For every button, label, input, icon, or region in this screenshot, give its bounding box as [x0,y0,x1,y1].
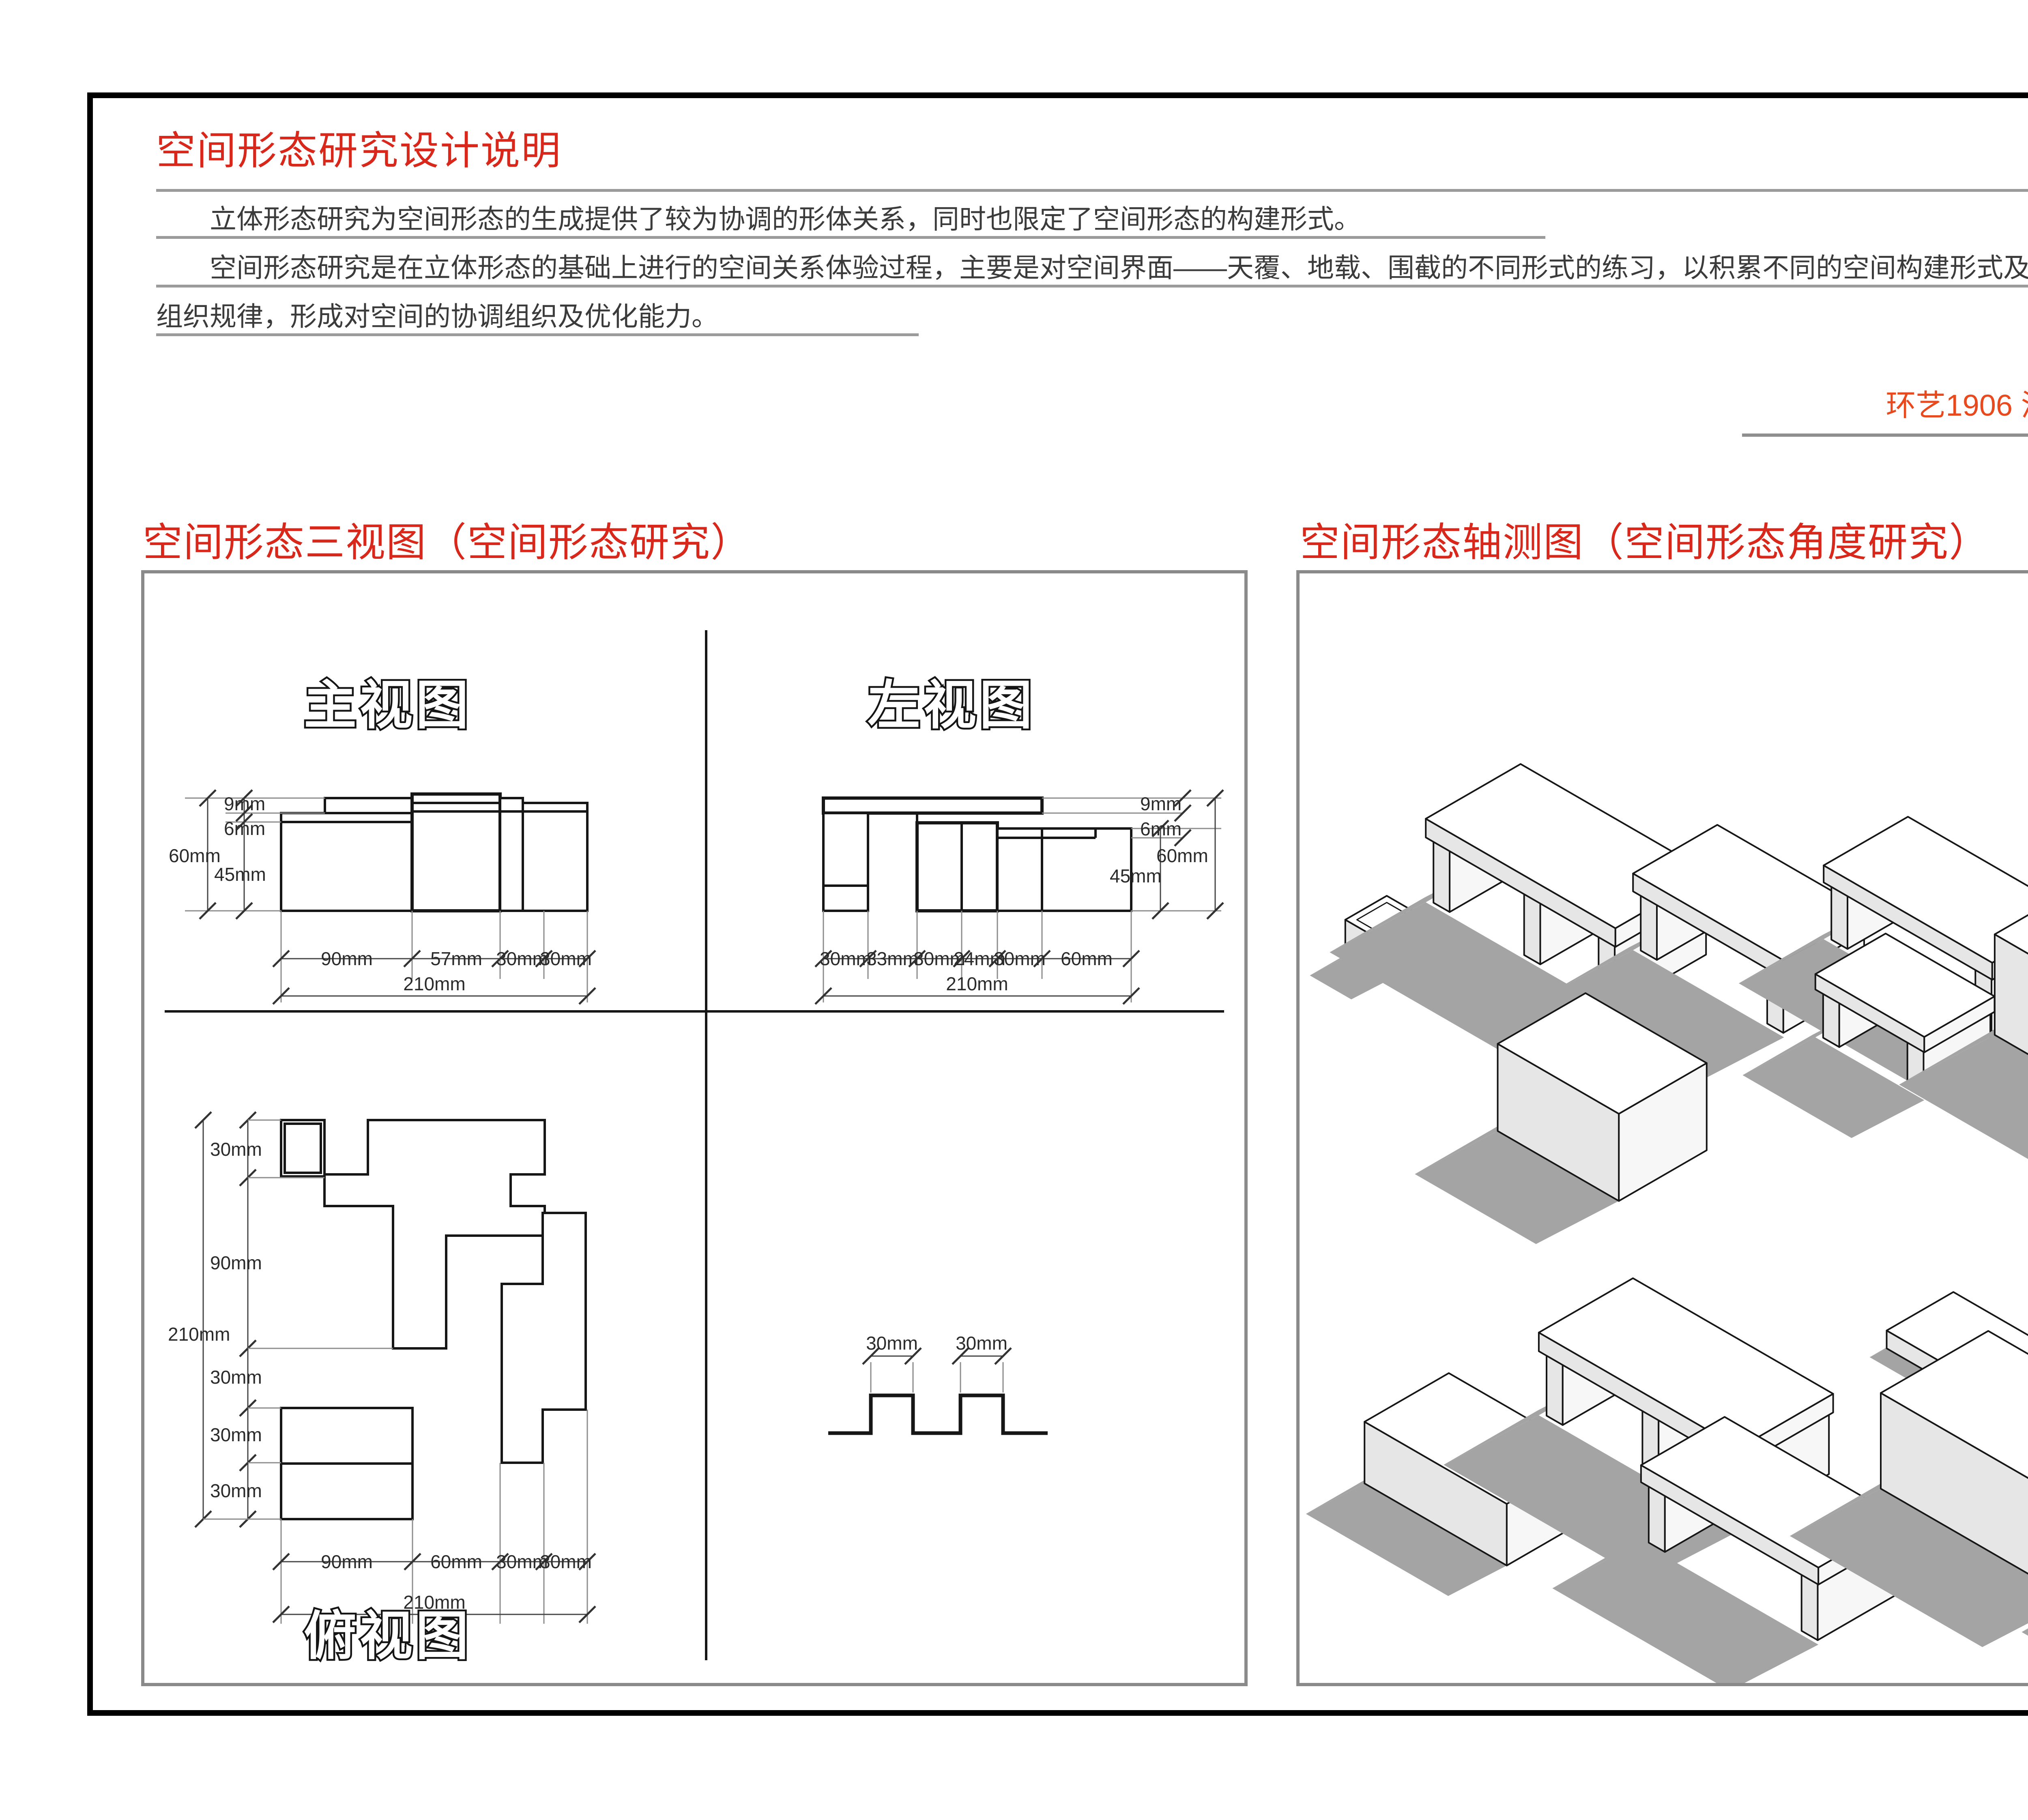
front-view-group: 主视图 9mm 6mm 60mm 45mm 90mm 57mm [169,676,595,1004]
front-bottom-dim-1: 90mm [321,948,373,969]
front-bottom-dim-2: 57mm [430,948,482,969]
three-view-section-heading: 空间形态三视图（空间形态研究） [143,510,751,568]
leftv-dim-6mm: 6mm [1140,818,1182,839]
topv-bottom-dim-1: 90mm [321,1551,373,1572]
leftv-bottom-dim-1: 30mm [820,948,872,969]
topv-left-dim-3: 30mm [210,1367,262,1388]
author-line: 环艺1906 潘雅轩 201940283 [1742,381,2028,437]
axon-shadow [1552,1542,1818,1683]
left-view-group: 左视图 9mm 6mm 60mm 45mm [815,676,1223,1004]
front-dim-45mm: 45mm [214,864,266,885]
three-view-drawing: 主视图 9mm 6mm 60mm 45mm 90mm 57mm [144,573,1244,1683]
leftv-dim-9mm: 9mm [1140,793,1182,814]
leftv-total-dim: 210mm [946,973,1008,994]
paragraph-line-1: 立体形态研究为空间形态的生成提供了较为协调的形体关系，同时也限定了空间形态的构建… [156,203,1545,239]
three-view-panel: 主视图 9mm 6mm 60mm 45mm 90mm 57mm [141,570,1248,1686]
leftv-dim-45mm: 45mm [1110,865,1162,886]
front-total-dim: 210mm [403,973,465,994]
front-dim-60mm: 60mm [169,845,221,866]
front-view-label: 主视图 [304,676,472,735]
profile-dim-1: 30mm [866,1333,918,1354]
topv-bottom-dim-2: 60mm [430,1551,482,1572]
front-dim-9mm: 9mm [224,793,265,814]
paragraph-line-3: 组织规律，形成对空间的协调组织及优化能力。 [156,300,919,336]
top-view-label: 俯视图 [304,1606,472,1665]
axonometric-section-heading: 空间形态轴测图（空间形态角度研究） [1300,510,1989,568]
title-rule [156,189,2028,192]
axonometric-panel [1296,570,2028,1686]
topv-left-total: 210mm [168,1324,230,1345]
left-view-label: 左视图 [868,676,1035,735]
topv-left-dim-2: 90mm [210,1252,262,1273]
profile-dim-2: 30mm [956,1333,1008,1354]
paragraph-line-2: 空间形态研究是在立体形态的基础上进行的空间关系体验过程，主要是对空间界面——天覆… [156,251,2028,288]
leftv-dim-60mm: 60mm [1156,845,1208,866]
axonometric-drawings [1300,573,2028,1683]
page-title: 空间形态研究设计说明 [156,118,562,176]
topv-bottom-dim-4: 30mm [540,1551,592,1572]
leftv-bottom-dim-2: 33mm [866,948,918,969]
leftv-bottom-dim-5: 30mm [994,948,1046,969]
leftv-bottom-dim-6: 60mm [1061,948,1113,969]
topv-left-dim-1: 30mm [210,1139,262,1160]
front-bottom-dim-4: 30mm [540,948,592,969]
topv-left-dim-4: 30mm [210,1424,262,1445]
topv-left-dim-5: 30mm [210,1480,262,1501]
front-dim-6mm: 6mm [224,818,265,839]
step-profile-group: 30mm 30mm [828,1333,1048,1433]
step-profile-line [828,1395,1048,1433]
top-view-group: 30mm 90mm 210mm 30mm 30mm 30mm 90mm 60mm… [168,1112,595,1665]
